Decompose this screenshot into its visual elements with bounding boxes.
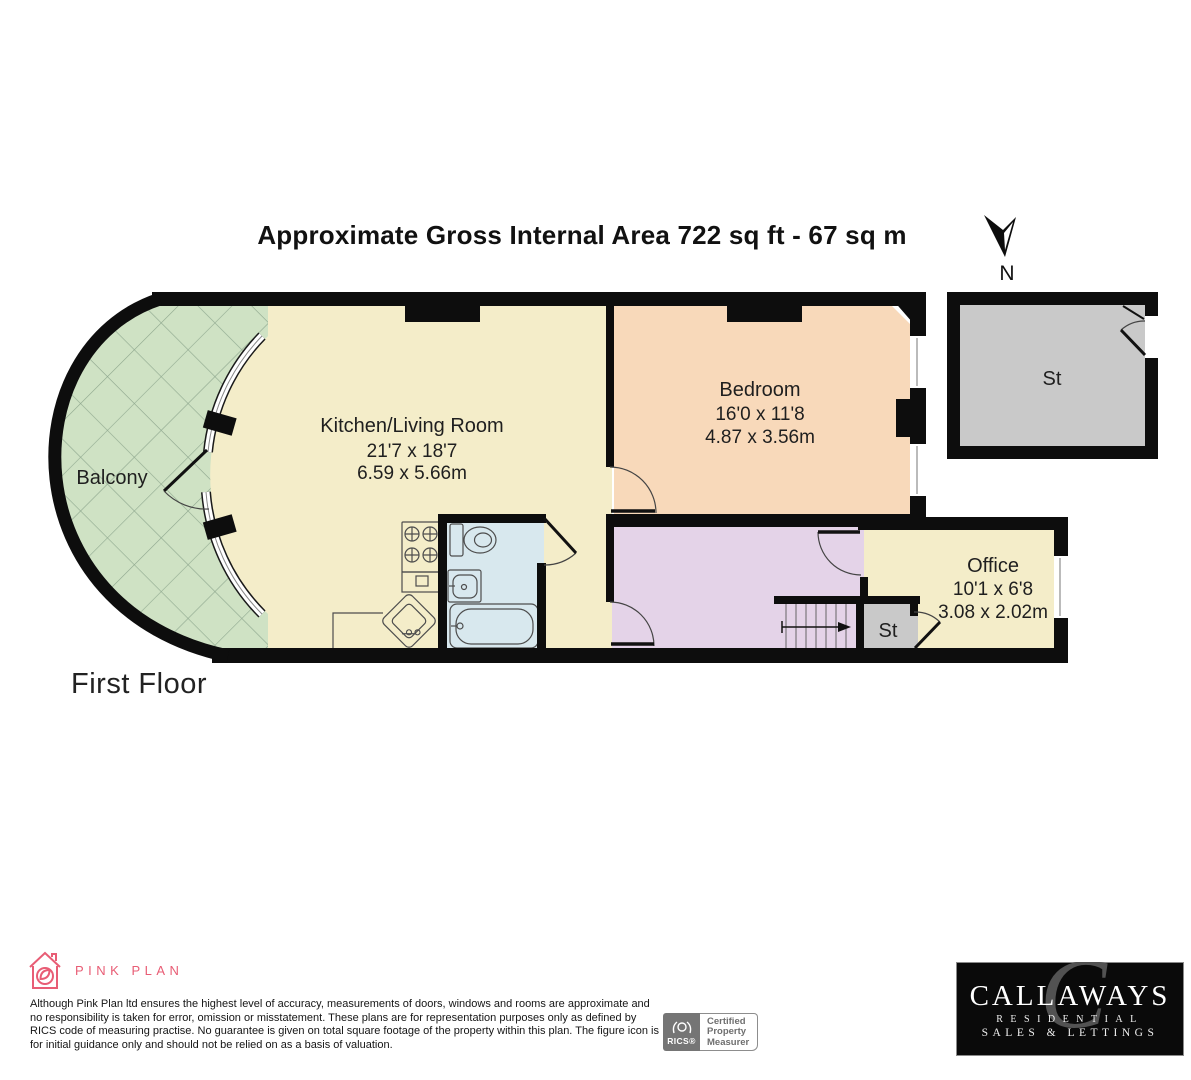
floorplan-drawing: N xyxy=(0,0,1191,1080)
north-arrow-icon: N xyxy=(984,215,1016,285)
rics-org-label: RICS® xyxy=(667,1036,696,1046)
pink-plan-brand: PINK PLAN xyxy=(27,949,183,991)
kitchen-dims-imperial: 21'7 x 18'7 xyxy=(367,441,458,462)
pink-plan-logo-icon xyxy=(27,949,63,991)
balcony-label: Balcony xyxy=(76,467,147,489)
hallway-room xyxy=(612,520,868,656)
bedroom-dims-imperial: 16'0 x 11'8 xyxy=(715,404,804,425)
disclaimer-text: Although Pink Plan ltd ensures the highe… xyxy=(30,998,660,1053)
agency-tagline-2: SALES & LETTINGS xyxy=(956,1027,1184,1039)
floor-label: First Floor xyxy=(71,668,207,701)
bedroom-dims-metric: 4.87 x 3.56m xyxy=(705,427,815,448)
bathroom-room xyxy=(442,516,544,652)
floorplan-page: Approximate Gross Internal Area 722 sq f… xyxy=(0,0,1191,1080)
bedroom-label: Bedroom xyxy=(719,379,800,401)
office-dims-imperial: 10'1 x 6'8 xyxy=(953,579,1033,600)
storage-large-label: St xyxy=(1043,368,1062,390)
kitchen-label: Kitchen/Living Room xyxy=(320,415,503,437)
rics-crest-icon: RICS® xyxy=(663,1013,700,1051)
agency-tagline-1: RESIDENTIAL xyxy=(956,1014,1184,1025)
rics-badge: RICS® Certified Property Measurer xyxy=(663,1013,758,1051)
agency-name: CALLAWAYS xyxy=(956,980,1184,1013)
office-label: Office xyxy=(967,555,1019,577)
rics-line-3: Measurer xyxy=(707,1038,749,1049)
storage-small-label: St xyxy=(879,620,898,642)
office-dims-metric: 3.08 x 2.02m xyxy=(938,602,1048,623)
rics-text: Certified Property Measurer xyxy=(700,1013,758,1051)
kitchen-dims-metric: 6.59 x 5.66m xyxy=(357,463,467,484)
north-label: N xyxy=(999,262,1014,285)
brand-name: PINK PLAN xyxy=(75,963,183,978)
agency-logo: C CALLAWAYS RESIDENTIAL SALES & LETTINGS xyxy=(956,962,1184,1056)
